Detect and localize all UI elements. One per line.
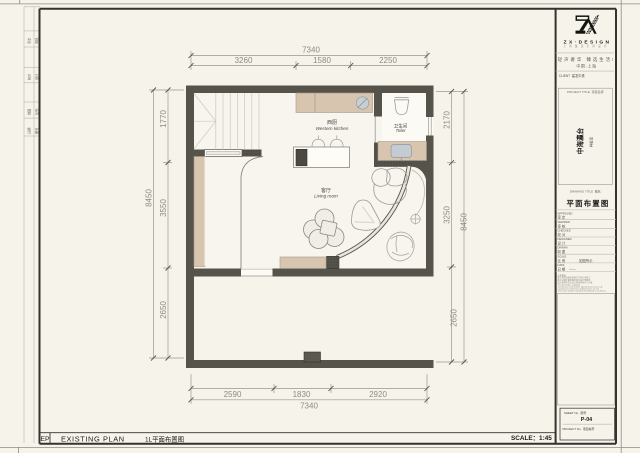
svg-text:Western kitchen: Western kitchen xyxy=(316,126,349,131)
svg-text:平面布置图: 平面布置图 xyxy=(567,199,610,208)
svg-text:2650: 2650 xyxy=(450,309,459,327)
svg-text:图号: 图号 xyxy=(34,128,39,134)
svg-text:DRAWN: DRAWN xyxy=(558,246,568,250)
svg-text:3250: 3250 xyxy=(443,206,452,224)
svg-text:7340: 7340 xyxy=(300,401,318,410)
svg-text:8450: 8450 xyxy=(460,213,469,231)
svg-text:制图: 制图 xyxy=(27,109,32,115)
svg-text:设计: 设计 xyxy=(34,73,39,80)
svg-text:校 对: 校 对 xyxy=(558,232,566,237)
svg-text:2170: 2170 xyxy=(443,111,452,129)
svg-text:如图所示: 如图所示 xyxy=(579,258,593,263)
svg-text:制 图: 制 图 xyxy=(558,249,566,254)
svg-text:日期: 日期 xyxy=(27,128,32,134)
svg-text:1580: 1580 xyxy=(313,56,331,65)
svg-text:上海臻选空间设计: 上海臻选空间设计 xyxy=(563,44,609,48)
svg-text:设 计: 设 计 xyxy=(558,241,566,246)
svg-text:SCALE: SCALE xyxy=(558,254,567,258)
svg-text:比 例: 比 例 xyxy=(558,258,566,263)
svg-text:CLIENT 建发中铁: CLIENT 建发中铁 xyxy=(559,73,586,78)
svg-text:APPROVED: APPROVED xyxy=(558,211,573,215)
svg-text:8450: 8450 xyxy=(145,189,154,207)
svg-text:CHECKED: CHECKED xyxy=(558,229,571,233)
svg-text:1L平面布置图: 1L平面布置图 xyxy=(145,434,184,443)
svg-text:审定: 审定 xyxy=(27,37,32,44)
svg-text:审 核: 审 核 xyxy=(558,223,566,228)
svg-text:Omissions shall be reported im: Omissions shall be reported immediately … xyxy=(558,289,606,292)
svg-text:SCALE：1:45: SCALE：1:45 xyxy=(511,435,552,442)
svg-text:EXISTING PLAN: EXISTING PLAN xyxy=(61,434,125,443)
svg-text:3550: 3550 xyxy=(159,199,168,217)
svg-text:2250: 2250 xyxy=(379,56,397,65)
svg-text:3260: 3260 xyxy=(235,56,253,65)
svg-text:P-04: P-04 xyxy=(581,417,592,423)
svg-text:7340: 7340 xyxy=(302,46,320,55)
svg-text:DESIGNER: DESIGNER xyxy=(558,237,572,241)
svg-text:2650: 2650 xyxy=(159,301,168,319)
svg-text:中国·上海: 中国·上海 xyxy=(576,63,596,69)
svg-text:PROJECT No. 项目编号: PROJECT No. 项目编号 xyxy=(563,426,595,431)
svg-text:DRAWING TITLE 图名: DRAWING TITLE 图名 xyxy=(570,189,601,194)
svg-text:1770: 1770 xyxy=(159,110,168,128)
svg-text:审核: 审核 xyxy=(34,37,39,44)
svg-text:EP: EP xyxy=(40,436,50,443)
svg-text:2920: 2920 xyxy=(369,390,387,399)
svg-text:审 定: 审 定 xyxy=(558,215,566,220)
svg-text:DATE: DATE xyxy=(558,263,565,267)
svg-text:日 期 ——: 日 期 —— xyxy=(558,267,577,272)
svg-text:2590: 2590 xyxy=(224,390,242,399)
svg-text:Living room: Living room xyxy=(314,193,338,198)
svg-text:比例: 比例 xyxy=(34,109,39,115)
svg-text:1830: 1830 xyxy=(293,390,311,399)
svg-text:校对: 校对 xyxy=(27,73,32,80)
svg-text:样板房: 样板房 xyxy=(589,136,594,147)
svg-text:中海瀛台: 中海瀛台 xyxy=(576,127,585,154)
svg-text:VERIFIED: VERIFIED xyxy=(558,220,570,224)
svg-text:PROJECT TITLE 项目名称: PROJECT TITLE 项目名称 xyxy=(567,89,604,94)
svg-text:轻声奢华 臻选生活!: 轻声奢华 臻选生活! xyxy=(558,56,616,63)
svg-text:Toilet: Toilet xyxy=(396,128,407,133)
svg-text:SHEET No. 图号: SHEET No. 图号 xyxy=(564,410,586,415)
